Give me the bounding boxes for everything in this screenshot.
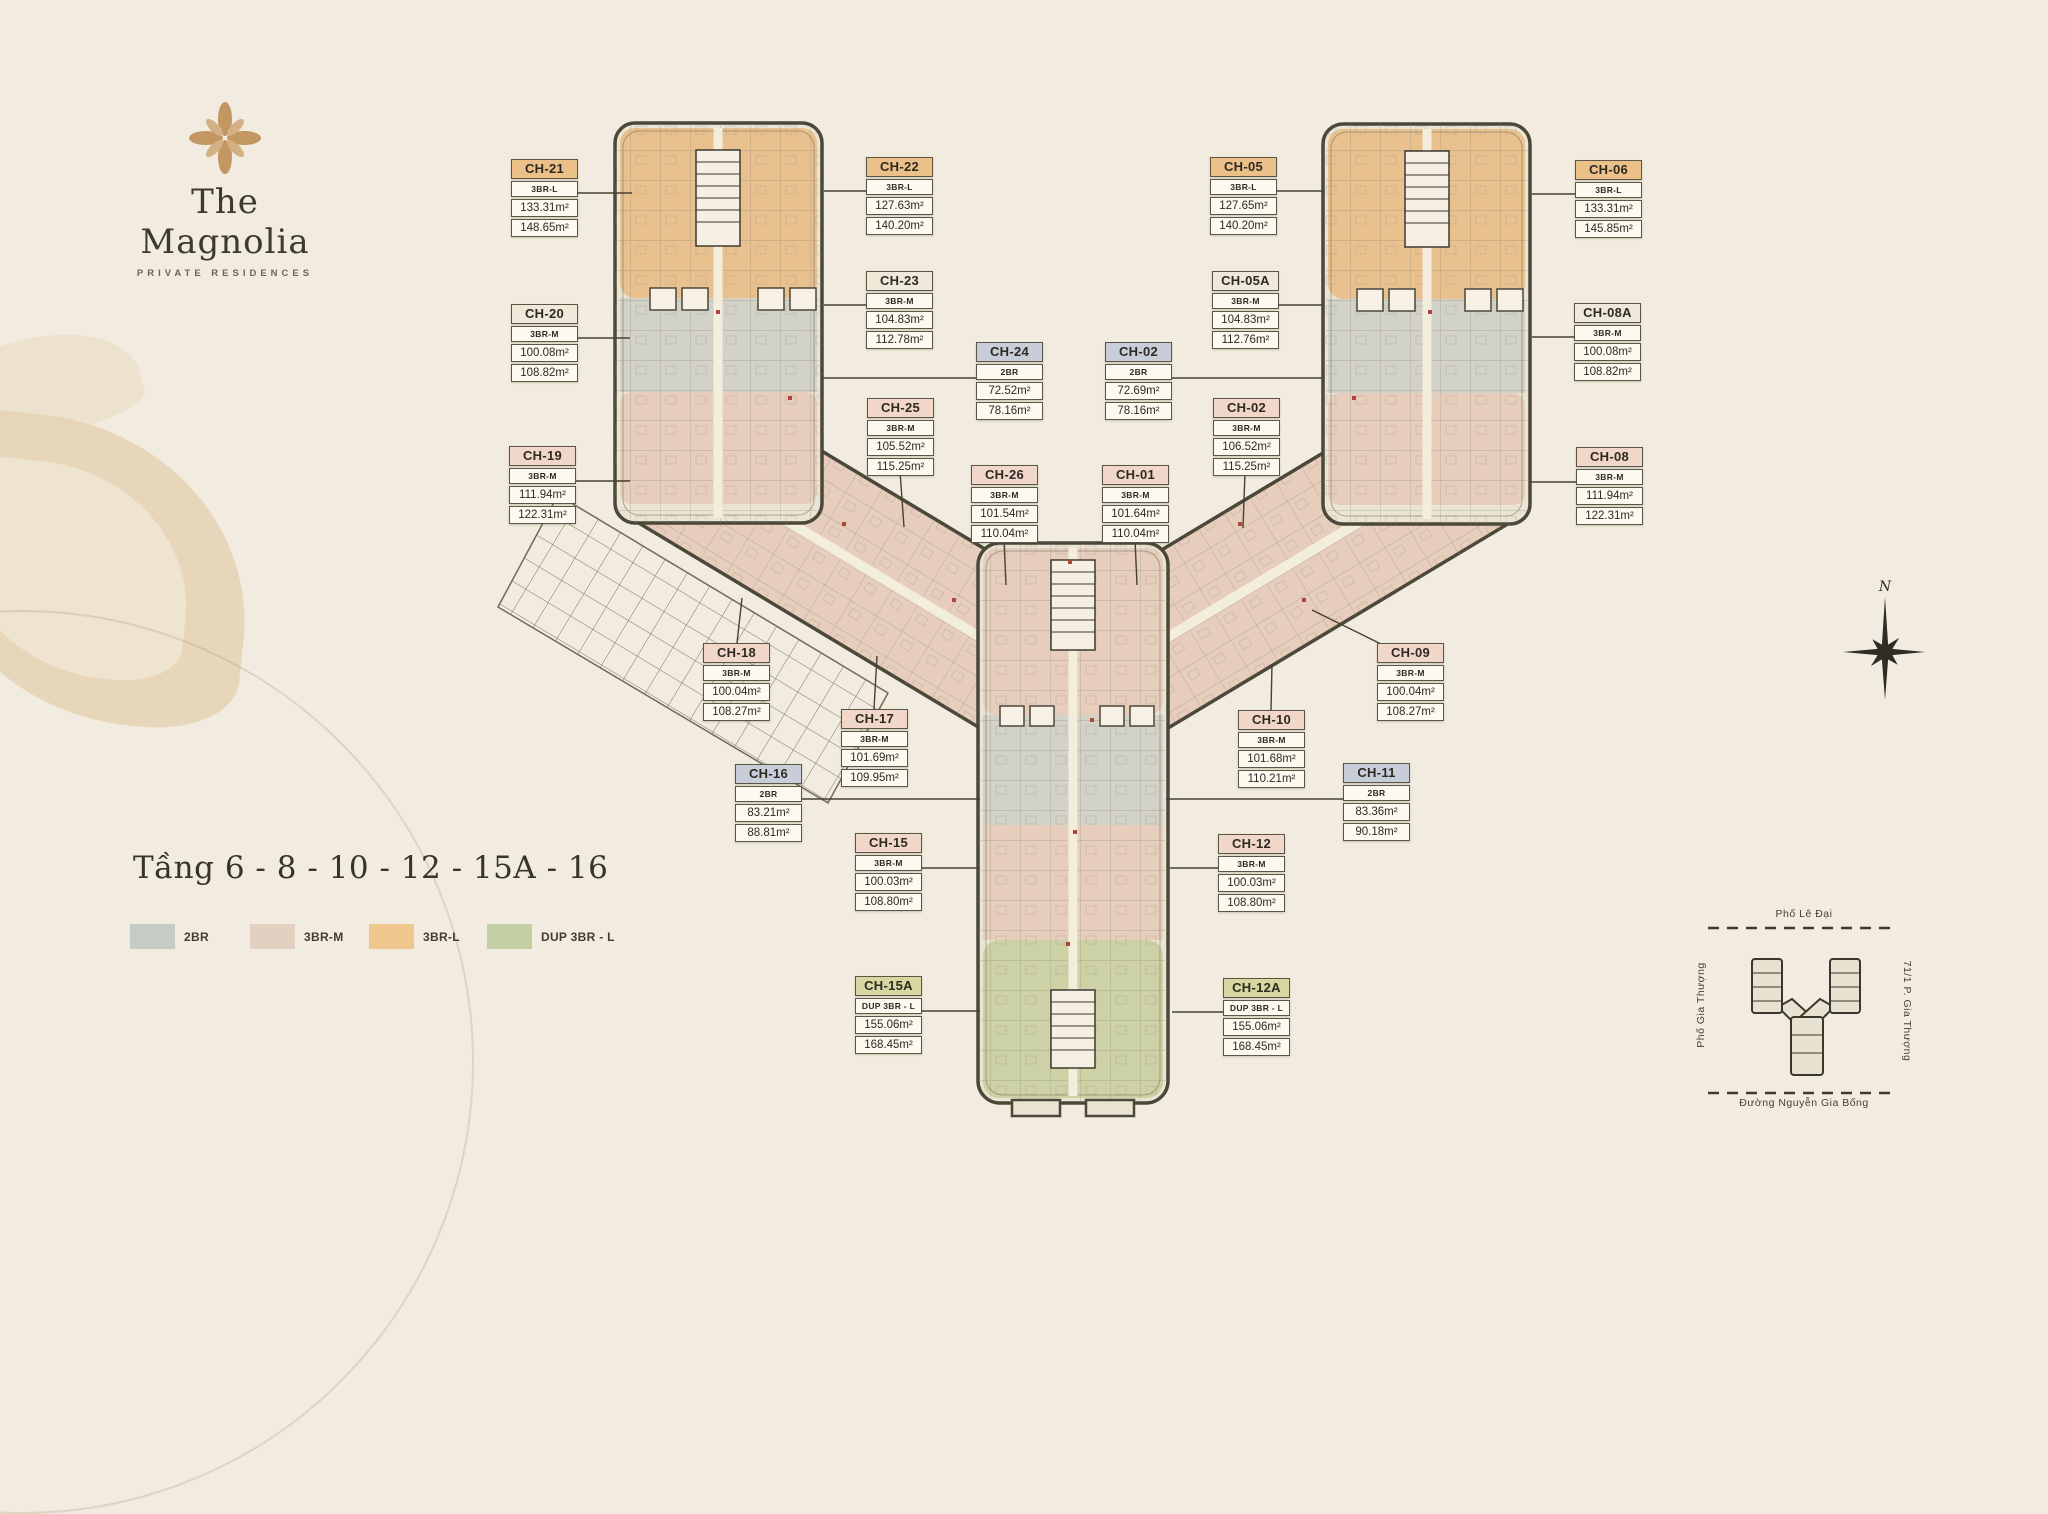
unit-type: 3BR-L bbox=[1210, 179, 1277, 195]
unit-area-1: 127.65m² bbox=[1210, 197, 1277, 215]
unit-type: 3BR-M bbox=[511, 326, 578, 342]
unit-label-ch-15a[interactable]: CH-15A DUP 3BR - L 155.06m² 168.45m² bbox=[855, 976, 922, 1054]
unit-label-ch-24[interactable]: CH-24 2BR 72.52m² 78.16m² bbox=[976, 342, 1043, 420]
unit-type: 2BR bbox=[976, 364, 1043, 380]
unit-area-2: 108.80m² bbox=[855, 893, 922, 911]
unit-area-1: 100.08m² bbox=[511, 344, 578, 362]
unit-label-ch-12[interactable]: CH-12 3BR-M 100.03m² 108.80m² bbox=[1218, 834, 1285, 912]
unit-label-ch-19[interactable]: CH-19 3BR-M 111.94m² 122.31m² bbox=[509, 446, 576, 524]
unit-label-ch-18[interactable]: CH-18 3BR-M 100.04m² 108.27m² bbox=[703, 643, 770, 721]
unit-id[interactable]: CH-20 bbox=[511, 304, 578, 324]
unit-id[interactable]: CH-11 bbox=[1343, 763, 1410, 783]
unit-label-ch-21[interactable]: CH-21 3BR-L 133.31m² 148.65m² bbox=[511, 159, 578, 237]
unit-area-1: 101.68m² bbox=[1238, 750, 1305, 768]
unit-area-2: 108.27m² bbox=[703, 703, 770, 721]
unit-label-ch-05[interactable]: CH-05 3BR-L 127.65m² 140.20m² bbox=[1210, 157, 1277, 235]
unit-area-2: 115.25m² bbox=[1213, 458, 1280, 476]
unit-area-2: 110.21m² bbox=[1238, 770, 1305, 788]
unit-type: 3BR-M bbox=[1212, 293, 1279, 309]
unit-id[interactable]: CH-21 bbox=[511, 159, 578, 179]
floor-plan-page: { "logo": { "icon": "magnolia-flower-ico… bbox=[0, 0, 2048, 1232]
unit-label-ch-17[interactable]: CH-17 3BR-M 101.69m² 109.95m² bbox=[841, 709, 908, 787]
unit-label-ch-06[interactable]: CH-06 3BR-L 133.31m² 145.85m² bbox=[1575, 160, 1642, 238]
unit-area-1: 83.36m² bbox=[1343, 803, 1410, 821]
unit-id[interactable]: CH-26 bbox=[971, 465, 1038, 485]
unit-id[interactable]: CH-12A bbox=[1223, 978, 1290, 998]
unit-id[interactable]: CH-23 bbox=[866, 271, 933, 291]
unit-type: 2BR bbox=[735, 786, 802, 802]
unit-area-1: 111.94m² bbox=[509, 486, 576, 504]
unit-area-2: 145.85m² bbox=[1575, 220, 1642, 238]
unit-type: 3BR-M bbox=[1218, 856, 1285, 872]
unit-area-1: 72.69m² bbox=[1105, 382, 1172, 400]
unit-area-1: 100.04m² bbox=[1377, 683, 1444, 701]
unit-area-2: 78.16m² bbox=[976, 402, 1043, 420]
unit-id[interactable]: CH-10 bbox=[1238, 710, 1305, 730]
unit-id[interactable]: CH-01 bbox=[1102, 465, 1169, 485]
unit-area-2: 110.04m² bbox=[1102, 525, 1169, 543]
unit-label-ch-09[interactable]: CH-09 3BR-M 100.04m² 108.27m² bbox=[1377, 643, 1444, 721]
unit-area-2: 108.82m² bbox=[511, 364, 578, 382]
unit-type: 3BR-L bbox=[1575, 182, 1642, 198]
unit-id[interactable]: CH-15 bbox=[855, 833, 922, 853]
unit-area-1: 104.83m² bbox=[1212, 311, 1279, 329]
unit-label-ch-05a[interactable]: CH-05A 3BR-M 104.83m² 112.76m² bbox=[1212, 271, 1279, 349]
unit-type: 2BR bbox=[1105, 364, 1172, 380]
unit-label-ch-11[interactable]: CH-11 2BR 83.36m² 90.18m² bbox=[1343, 763, 1410, 841]
unit-area-2: 110.04m² bbox=[971, 525, 1038, 543]
unit-area-2: 122.31m² bbox=[1576, 507, 1643, 525]
unit-type: 3BR-M bbox=[1377, 665, 1444, 681]
unit-label-ch-02[interactable]: CH-02 2BR 72.69m² 78.16m² bbox=[1105, 342, 1172, 420]
unit-label-ch-02[interactable]: CH-02 3BR-M 106.52m² 115.25m² bbox=[1213, 398, 1280, 476]
unit-area-1: 100.03m² bbox=[855, 873, 922, 891]
unit-area-2: 108.80m² bbox=[1218, 894, 1285, 912]
unit-area-2: 88.81m² bbox=[735, 824, 802, 842]
unit-id[interactable]: CH-24 bbox=[976, 342, 1043, 362]
unit-area-1: 104.83m² bbox=[866, 311, 933, 329]
unit-id[interactable]: CH-02 bbox=[1105, 342, 1172, 362]
unit-id[interactable]: CH-22 bbox=[866, 157, 933, 177]
unit-area-2: 109.95m² bbox=[841, 769, 908, 787]
unit-type: 3BR-M bbox=[841, 731, 908, 747]
unit-type: 3BR-M bbox=[971, 487, 1038, 503]
unit-area-2: 168.45m² bbox=[1223, 1038, 1290, 1056]
unit-id[interactable]: CH-08 bbox=[1576, 447, 1643, 467]
unit-label-ch-01[interactable]: CH-01 3BR-M 101.64m² 110.04m² bbox=[1102, 465, 1169, 543]
unit-label-ch-15[interactable]: CH-15 3BR-M 100.03m² 108.80m² bbox=[855, 833, 922, 911]
unit-label-ch-10[interactable]: CH-10 3BR-M 101.68m² 110.21m² bbox=[1238, 710, 1305, 788]
unit-area-2: 168.45m² bbox=[855, 1036, 922, 1054]
unit-label-ch-25[interactable]: CH-25 3BR-M 105.52m² 115.25m² bbox=[867, 398, 934, 476]
unit-id[interactable]: CH-16 bbox=[735, 764, 802, 784]
unit-area-2: 108.82m² bbox=[1574, 363, 1641, 381]
unit-id[interactable]: CH-19 bbox=[509, 446, 576, 466]
unit-area-1: 105.52m² bbox=[867, 438, 934, 456]
unit-id[interactable]: CH-15A bbox=[855, 976, 922, 996]
unit-area-2: 78.16m² bbox=[1105, 402, 1172, 420]
unit-type: DUP 3BR - L bbox=[1223, 1000, 1290, 1016]
unit-type: 3BR-M bbox=[1102, 487, 1169, 503]
unit-type: 2BR bbox=[1343, 785, 1410, 801]
unit-type: 3BR-M bbox=[703, 665, 770, 681]
unit-id[interactable]: CH-12 bbox=[1218, 834, 1285, 854]
unit-area-2: 90.18m² bbox=[1343, 823, 1410, 841]
unit-area-2: 112.76m² bbox=[1212, 331, 1279, 349]
unit-area-1: 83.21m² bbox=[735, 804, 802, 822]
unit-id[interactable]: CH-17 bbox=[841, 709, 908, 729]
unit-label-ch-08[interactable]: CH-08 3BR-M 111.94m² 122.31m² bbox=[1576, 447, 1643, 525]
unit-id[interactable]: CH-06 bbox=[1575, 160, 1642, 180]
unit-id[interactable]: CH-05A bbox=[1212, 271, 1279, 291]
unit-label-ch-08a[interactable]: CH-08A 3BR-M 100.08m² 108.82m² bbox=[1574, 303, 1641, 381]
unit-area-1: 101.54m² bbox=[971, 505, 1038, 523]
unit-type: 3BR-M bbox=[509, 468, 576, 484]
unit-area-2: 112.78m² bbox=[866, 331, 933, 349]
unit-area-2: 115.25m² bbox=[867, 458, 934, 476]
unit-id[interactable]: CH-02 bbox=[1213, 398, 1280, 418]
unit-id[interactable]: CH-09 bbox=[1377, 643, 1444, 663]
unit-area-2: 148.65m² bbox=[511, 219, 578, 237]
unit-label-ch-12a[interactable]: CH-12A DUP 3BR - L 155.06m² 168.45m² bbox=[1223, 978, 1290, 1056]
unit-area-1: 101.64m² bbox=[1102, 505, 1169, 523]
unit-area-2: 140.20m² bbox=[1210, 217, 1277, 235]
unit-type: 3BR-M bbox=[1238, 732, 1305, 748]
unit-label-ch-22[interactable]: CH-22 3BR-L 127.63m² 140.20m² bbox=[866, 157, 933, 235]
unit-area-1: 133.31m² bbox=[511, 199, 578, 217]
unit-area-1: 106.52m² bbox=[1213, 438, 1280, 456]
unit-type: 3BR-L bbox=[511, 181, 578, 197]
unit-area-1: 155.06m² bbox=[1223, 1018, 1290, 1036]
unit-type: 3BR-M bbox=[866, 293, 933, 309]
unit-area-1: 101.69m² bbox=[841, 749, 908, 767]
unit-type: DUP 3BR - L bbox=[855, 998, 922, 1014]
unit-area-1: 111.94m² bbox=[1576, 487, 1643, 505]
unit-area-1: 100.03m² bbox=[1218, 874, 1285, 892]
unit-type: 3BR-M bbox=[855, 855, 922, 871]
unit-area-1: 133.31m² bbox=[1575, 200, 1642, 218]
unit-area-2: 108.27m² bbox=[1377, 703, 1444, 721]
unit-id[interactable]: CH-25 bbox=[867, 398, 934, 418]
unit-area-1: 72.52m² bbox=[976, 382, 1043, 400]
unit-type: 3BR-M bbox=[867, 420, 934, 436]
unit-label-ch-16[interactable]: CH-16 2BR 83.21m² 88.81m² bbox=[735, 764, 802, 842]
unit-id[interactable]: CH-08A bbox=[1574, 303, 1641, 323]
unit-type: 3BR-L bbox=[866, 179, 933, 195]
unit-area-1: 100.04m² bbox=[703, 683, 770, 701]
unit-id[interactable]: CH-18 bbox=[703, 643, 770, 663]
unit-labels-layer: CH-21 3BR-L 133.31m² 148.65m² CH-20 3BR-… bbox=[0, 0, 2048, 1232]
unit-id[interactable]: CH-05 bbox=[1210, 157, 1277, 177]
unit-label-ch-23[interactable]: CH-23 3BR-M 104.83m² 112.78m² bbox=[866, 271, 933, 349]
unit-area-1: 127.63m² bbox=[866, 197, 933, 215]
unit-area-2: 140.20m² bbox=[866, 217, 933, 235]
unit-area-1: 100.08m² bbox=[1574, 343, 1641, 361]
unit-area-1: 155.06m² bbox=[855, 1016, 922, 1034]
unit-label-ch-26[interactable]: CH-26 3BR-M 101.54m² 110.04m² bbox=[971, 465, 1038, 543]
unit-type: 3BR-M bbox=[1213, 420, 1280, 436]
unit-type: 3BR-M bbox=[1576, 469, 1643, 485]
unit-label-ch-20[interactable]: CH-20 3BR-M 100.08m² 108.82m² bbox=[511, 304, 578, 382]
unit-type: 3BR-M bbox=[1574, 325, 1641, 341]
unit-area-2: 122.31m² bbox=[509, 506, 576, 524]
